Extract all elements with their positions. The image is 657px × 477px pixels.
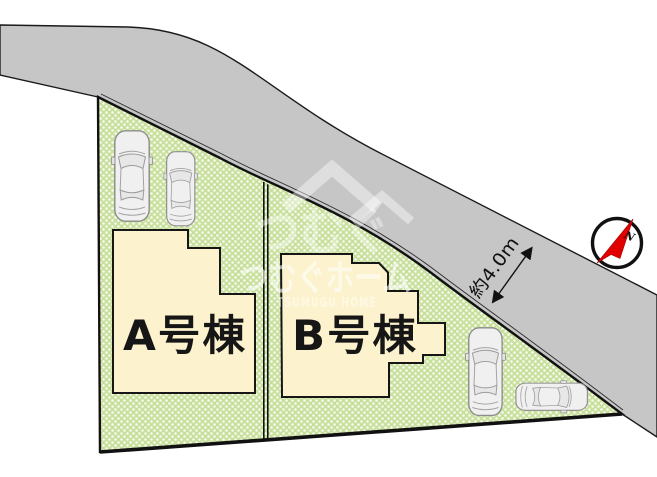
site-plan-drawing: つむぐ つむぐホーム TSUMUGU HOME A号棟 B号棟 約4.0m N xyxy=(0,0,657,477)
building-b-label: B号棟 xyxy=(292,311,418,360)
compass: N xyxy=(593,219,642,268)
car-icon xyxy=(164,152,198,226)
watermark-brand-jp: つむぐホーム xyxy=(239,258,411,299)
building-a-label: A号棟 xyxy=(123,311,247,360)
watermark-brand-en: TSUMUGU HOME xyxy=(277,295,377,311)
car-icon xyxy=(111,131,152,221)
car-icon xyxy=(465,328,505,416)
car-icon xyxy=(516,380,587,413)
site-plan-canvas: つむぐ つむぐホーム TSUMUGU HOME A号棟 B号棟 約4.0m N xyxy=(0,0,657,477)
watermark-logo-text: つむぐ xyxy=(255,203,390,263)
